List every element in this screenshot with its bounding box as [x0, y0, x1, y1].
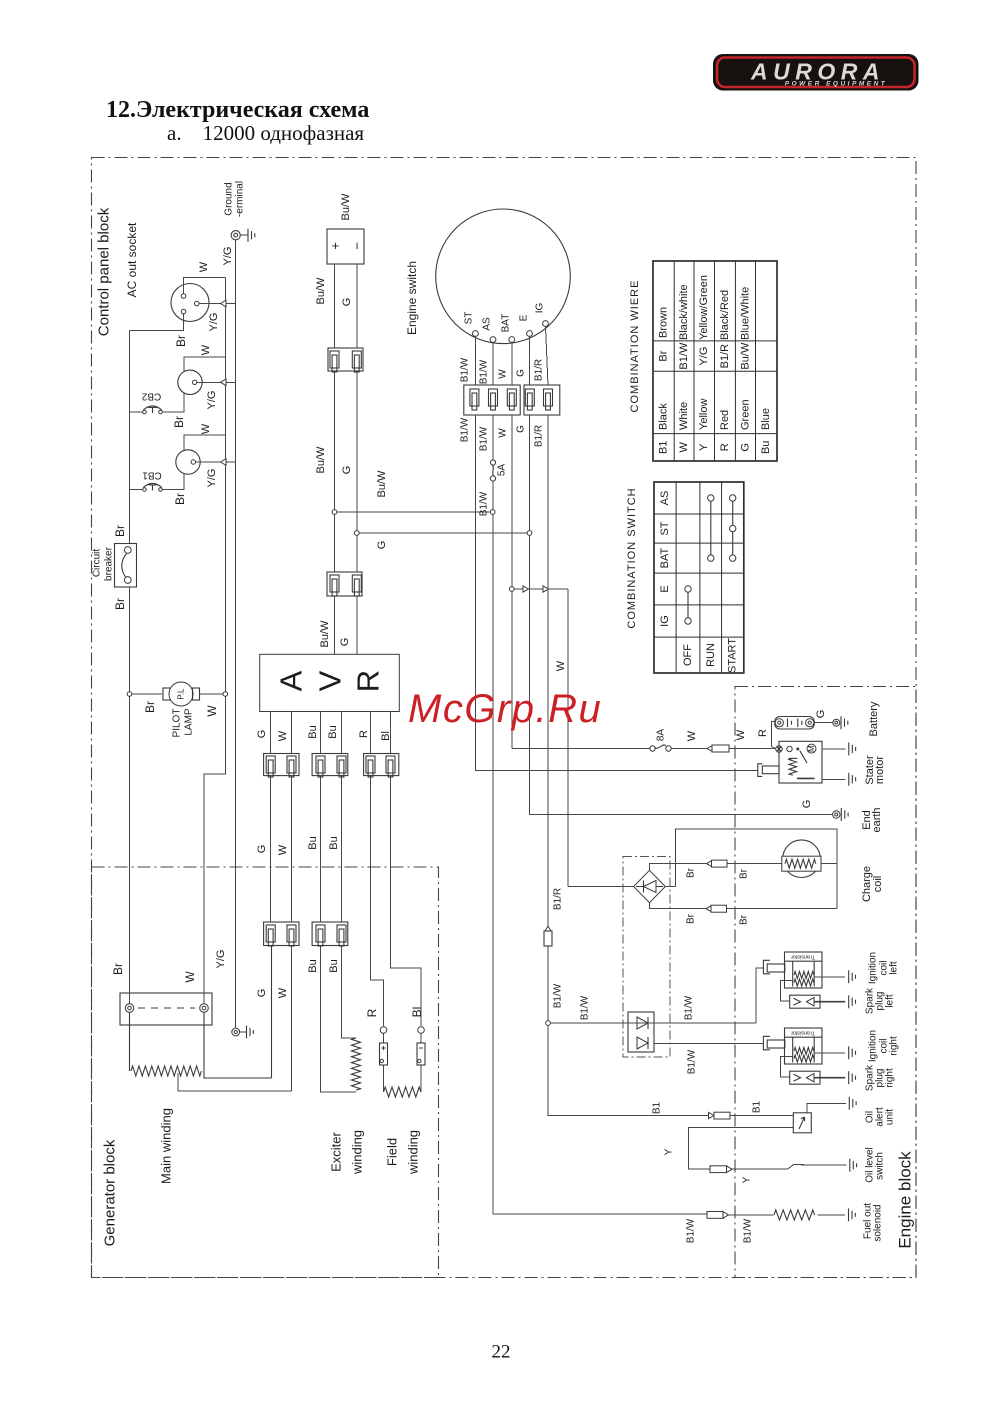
svg-text:Bu: Bu — [328, 836, 340, 849]
svg-text:Y: Y — [698, 443, 710, 451]
svg-text:Black: Black — [658, 403, 670, 430]
svg-text:W: W — [198, 261, 210, 272]
svg-text:AS: AS — [482, 317, 493, 331]
svg-text:motor: motor — [874, 756, 886, 784]
svg-text:B1: B1 — [652, 1101, 663, 1114]
svg-text:Blue: Blue — [760, 408, 772, 430]
svg-text:Engine block: Engine block — [896, 1151, 915, 1249]
svg-text:W: W — [498, 369, 509, 379]
svg-text:22: 22 — [492, 1342, 511, 1363]
svg-text:Transistor: Transistor — [791, 954, 815, 960]
svg-text:B1/W: B1/W — [684, 995, 695, 1020]
svg-text:Br: Br — [113, 598, 127, 610]
svg-text:PILOT: PILOT — [172, 709, 183, 738]
svg-text:coil: coil — [872, 876, 884, 893]
svg-text:B1/W: B1/W — [553, 983, 564, 1008]
svg-text:P.L: P.L — [177, 688, 186, 700]
svg-text:AS: AS — [659, 491, 671, 506]
svg-text:A: A — [274, 670, 309, 691]
svg-text:W: W — [498, 428, 509, 438]
svg-text:Y/G: Y/G — [222, 247, 234, 266]
svg-text:COMBINATION SWITCH: COMBINATION SWITCH — [626, 487, 638, 628]
svg-text:G: G — [256, 989, 268, 998]
svg-text:START: START — [727, 638, 739, 673]
svg-text:G: G — [339, 638, 351, 647]
svg-text:B1/R: B1/R — [553, 888, 564, 910]
svg-text:G: G — [341, 466, 353, 475]
svg-text:R: R — [757, 729, 769, 737]
svg-text:Br: Br — [686, 867, 697, 878]
svg-text:B1/W: B1/W — [479, 426, 490, 451]
svg-text:Bu: Bu — [307, 725, 319, 738]
svg-text:R: R — [719, 443, 731, 451]
svg-text:B1/W: B1/W — [460, 417, 471, 442]
svg-text:Y/G: Y/G — [206, 391, 218, 410]
svg-text:breaker: breaker — [104, 546, 115, 581]
svg-text:E: E — [659, 585, 671, 592]
svg-text:G: G — [516, 369, 527, 377]
svg-text:ST: ST — [659, 521, 671, 535]
svg-text:W: W — [686, 730, 698, 741]
svg-text:Bu/W: Bu/W — [340, 193, 352, 221]
svg-text:W: W — [200, 423, 212, 434]
svg-text:G: G — [256, 730, 268, 739]
svg-text:Control panel block: Control panel block — [96, 207, 113, 336]
svg-text:Ground: Ground — [224, 182, 235, 215]
svg-text:Br: Br — [658, 350, 670, 361]
svg-text:B1/W: B1/W — [687, 1049, 698, 1074]
svg-text:8A: 8A — [656, 729, 667, 742]
svg-text:R: R — [365, 1008, 379, 1017]
svg-text:OFF: OFF — [682, 644, 694, 666]
svg-text:Bu/W: Bu/W — [319, 620, 331, 648]
svg-text:CB1: CB1 — [142, 470, 162, 481]
svg-text:G: G — [516, 425, 527, 433]
svg-text:W: W — [735, 729, 747, 740]
svg-text:Br: Br — [111, 963, 125, 975]
svg-text:Bu: Bu — [307, 836, 319, 849]
svg-text:Exciter: Exciter — [329, 1131, 344, 1171]
svg-text:CB2: CB2 — [141, 391, 161, 402]
svg-text:Bu/W: Bu/W — [376, 470, 388, 498]
svg-text:V: V — [313, 670, 348, 691]
svg-text:Yellow/Green: Yellow/Green — [698, 275, 710, 340]
svg-text:Field: Field — [385, 1138, 400, 1166]
svg-text:W: W — [205, 705, 219, 717]
svg-text:Main winding: Main winding — [159, 1108, 174, 1184]
svg-text:Red: Red — [719, 410, 731, 430]
svg-text:Blue/White: Blue/White — [739, 287, 751, 340]
svg-text:Bu/W: Bu/W — [315, 446, 327, 474]
svg-text:R: R — [351, 670, 386, 692]
svg-text:Y/G: Y/G — [208, 313, 220, 332]
svg-text:BAT: BAT — [501, 314, 512, 333]
svg-text:COMBINATION WIERE: COMBINATION WIERE — [629, 280, 641, 413]
svg-text:G: G — [341, 298, 353, 307]
svg-text:−: − — [350, 242, 365, 250]
svg-text:Ignition: Ignition — [868, 1030, 879, 1062]
svg-text:right: right — [885, 1068, 896, 1088]
svg-text:RUN: RUN — [705, 643, 717, 667]
svg-text:Bu: Bu — [328, 959, 340, 972]
svg-text:Br: Br — [173, 493, 187, 505]
svg-text:Yellow: Yellow — [698, 399, 710, 430]
svg-text:B1: B1 — [752, 1100, 763, 1113]
svg-text:B1/W: B1/W — [686, 1218, 697, 1243]
svg-text:G: G — [376, 541, 388, 550]
svg-text:R: R — [358, 730, 370, 738]
svg-text:IG: IG — [535, 303, 546, 314]
svg-text:+: + — [328, 242, 343, 250]
svg-text:McGrp.Ru: McGrp.Ru — [408, 687, 602, 731]
svg-text:Bu: Bu — [307, 959, 319, 972]
svg-text:B1/W: B1/W — [743, 1218, 754, 1243]
svg-text:Ignition: Ignition — [868, 952, 879, 984]
svg-text:Bu/W: Bu/W — [315, 277, 327, 305]
svg-text:Bl: Bl — [410, 1007, 424, 1018]
svg-text:Engine switch: Engine switch — [405, 261, 419, 335]
svg-text:W: W — [678, 441, 690, 452]
svg-text:Generator block: Generator block — [102, 1139, 119, 1246]
svg-text:B1/W: B1/W — [678, 342, 690, 370]
svg-text:solenoid: solenoid — [873, 1204, 884, 1241]
svg-text:G: G — [256, 845, 268, 854]
svg-text:Br: Br — [739, 914, 750, 925]
svg-text:B1/R: B1/R — [719, 344, 731, 369]
svg-text:Circuit: Circuit — [92, 549, 103, 578]
svg-text:LAMP: LAMP — [184, 708, 195, 736]
svg-text:Y/G: Y/G — [206, 469, 218, 488]
svg-text:IG: IG — [659, 615, 671, 627]
svg-text:M: M — [807, 745, 816, 752]
svg-text:12.Электрическая схема: 12.Электрическая схема — [106, 97, 369, 123]
svg-text:Y/G: Y/G — [215, 950, 227, 969]
svg-text:right: right — [889, 1036, 900, 1056]
svg-text:winding: winding — [406, 1130, 421, 1175]
svg-text:White: White — [678, 402, 690, 430]
svg-text:B1/W: B1/W — [460, 357, 471, 382]
svg-text:Black/white: Black/white — [678, 284, 690, 340]
svg-text:B1/W: B1/W — [479, 491, 490, 516]
svg-text:W: W — [183, 971, 197, 983]
svg-text:Br: Br — [686, 913, 697, 924]
svg-text:B1: B1 — [658, 441, 670, 454]
svg-text:W: W — [555, 660, 567, 671]
svg-text:Brown: Brown — [658, 307, 670, 338]
svg-text:W: W — [277, 844, 289, 855]
svg-text:Battery: Battery — [868, 701, 880, 736]
svg-text:B1/R: B1/R — [534, 425, 545, 447]
svg-text:Br: Br — [143, 701, 157, 713]
svg-text:Bl: Bl — [380, 731, 392, 741]
svg-text:E: E — [519, 314, 530, 321]
svg-text:Bu: Bu — [760, 441, 772, 454]
svg-text:Br: Br — [174, 335, 188, 347]
svg-text:Green: Green — [739, 399, 751, 430]
svg-text:B1/W: B1/W — [580, 995, 591, 1020]
svg-text:Y: Y — [742, 1176, 753, 1183]
svg-text:G: G — [739, 443, 751, 452]
svg-text:W: W — [200, 344, 212, 355]
svg-text:POWER EQUIPMENT: POWER EQUIPMENT — [785, 81, 888, 88]
svg-text:W: W — [277, 987, 289, 998]
svg-text:-erminal: -erminal — [235, 181, 246, 217]
svg-text:Bu: Bu — [327, 725, 339, 738]
svg-text:Br: Br — [739, 868, 750, 879]
svg-text:left: left — [889, 961, 900, 975]
svg-text:left: left — [885, 994, 896, 1008]
svg-text:W: W — [277, 730, 289, 741]
svg-text:5A: 5A — [497, 464, 508, 477]
svg-text:Black/Red: Black/Red — [719, 290, 731, 340]
svg-text:AC out socket: AC out socket — [125, 222, 139, 297]
svg-text:G: G — [815, 710, 827, 719]
svg-text:G: G — [801, 800, 813, 809]
svg-text:Y: Y — [664, 1148, 675, 1155]
svg-text:Br: Br — [172, 416, 186, 428]
svg-text:winding: winding — [350, 1130, 365, 1175]
svg-text:B1/R: B1/R — [534, 359, 545, 381]
svg-text:a. 12000 однофазная: a. 12000 однофазная — [167, 121, 364, 145]
svg-text:ST: ST — [464, 312, 475, 325]
svg-text:Y/G: Y/G — [698, 347, 710, 366]
svg-text:unit: unit — [885, 1109, 896, 1125]
svg-text:switch: switch — [875, 1152, 886, 1180]
svg-text:earth: earth — [871, 807, 883, 832]
svg-text:Bu/W: Bu/W — [739, 342, 751, 370]
svg-text:BAT: BAT — [659, 548, 671, 569]
svg-text:B1/W: B1/W — [479, 359, 490, 384]
svg-text:Br: Br — [113, 525, 127, 537]
